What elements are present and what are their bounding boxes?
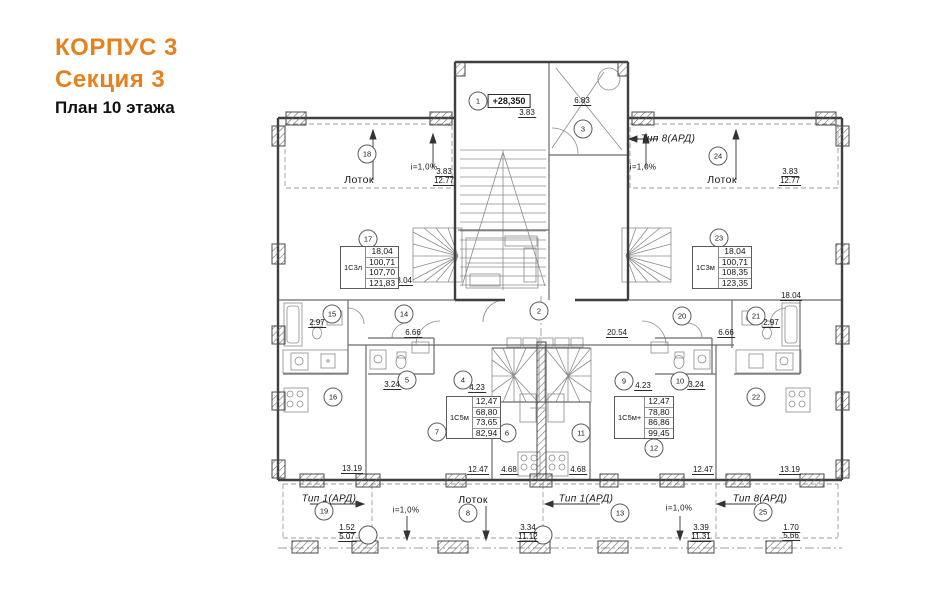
outer-walls bbox=[278, 62, 842, 480]
floor-plan-drawing bbox=[0, 0, 941, 600]
floor-plan-page: КОРПУС 3 Секция 3 План 10 этажа bbox=[0, 0, 941, 600]
partition-walls bbox=[278, 62, 842, 480]
